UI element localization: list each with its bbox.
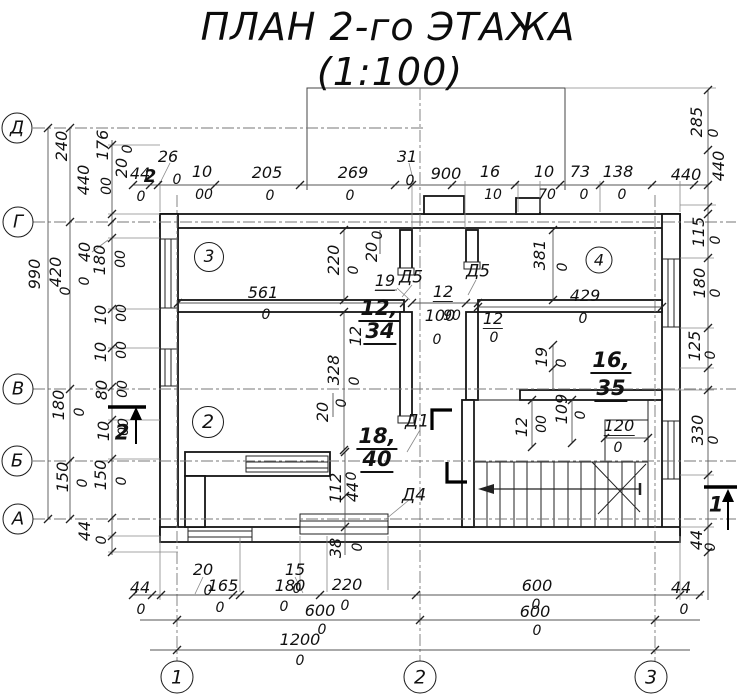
dim-label: 0	[137, 190, 146, 204]
dim-label: 0	[574, 411, 588, 420]
dim-label: 0	[347, 266, 361, 275]
dim-label: 00	[195, 188, 213, 202]
dim-label: 0	[709, 236, 723, 245]
dim-label: 240	[54, 131, 70, 162]
dim-label: 115	[691, 217, 707, 248]
door-label: Д4	[402, 488, 426, 505]
floor-plan-drawing: ПЛАН 2-го ЭТАЖА(1:100)440260100020502690…	[0, 0, 740, 695]
dim-label: 0	[351, 543, 365, 552]
section-label: 2	[115, 423, 130, 444]
dim-label: 00	[114, 250, 128, 268]
dim-label: 180	[51, 390, 67, 421]
title-line2: (1:100)	[317, 53, 463, 91]
dim-label: 31	[397, 149, 417, 165]
axis-circle: 4	[586, 247, 613, 274]
area-label: 34	[363, 321, 396, 345]
axis-circle: 3	[635, 661, 668, 694]
dim-label: 0	[335, 399, 349, 408]
dim-label: 150	[55, 462, 71, 493]
dim-label: 10	[534, 164, 554, 180]
dim-label: 561	[248, 285, 279, 301]
dim-label: 440	[76, 165, 92, 196]
dim-label: 0	[115, 477, 129, 486]
dim-label: 0	[556, 263, 570, 272]
dim-label: 138	[603, 164, 634, 180]
door-label: Д5	[466, 264, 490, 281]
dim-label: 0	[614, 441, 623, 455]
dim-label: 80	[94, 380, 110, 400]
dim-label: 109	[554, 394, 570, 425]
dim-label: 12	[514, 417, 530, 437]
dim-label: 1200	[280, 632, 321, 648]
dim-label: 0	[433, 333, 442, 347]
dim-label: 10	[93, 305, 109, 325]
dim-label: 0	[216, 601, 225, 615]
dim-label: 0	[680, 603, 689, 617]
dim-label: 0	[707, 436, 721, 445]
dim-label: 165	[208, 578, 239, 594]
axis-circle: Г	[3, 207, 34, 238]
axis-circle: 2	[192, 406, 224, 438]
dim-label: 0	[709, 289, 723, 298]
dim-label: 0	[580, 188, 589, 202]
dim-label: 44	[130, 580, 150, 596]
dim-label: 0	[73, 408, 87, 417]
dim-label: 150	[93, 460, 109, 491]
axis-circle: 2	[404, 661, 437, 694]
area-label: 40	[360, 449, 393, 473]
dim-label: 44	[77, 521, 93, 541]
dim-label: 00	[115, 341, 129, 359]
dim-label: 429	[570, 288, 601, 304]
dim-label: 120	[604, 418, 635, 436]
dim-label: 420	[48, 257, 64, 288]
dim-label: 600	[305, 603, 336, 619]
dim-label: 0	[704, 351, 718, 360]
dim-label: 0	[296, 654, 305, 668]
dim-label: 90	[443, 309, 461, 323]
dim-label: 00	[100, 177, 114, 195]
axis-circle: Б	[2, 446, 33, 477]
dim-label: 205	[252, 165, 283, 181]
axis-circle: 1	[161, 661, 194, 694]
dim-label: 440	[711, 151, 727, 182]
dim-label: 990	[27, 259, 43, 290]
dim-label: 20	[364, 242, 380, 262]
door-label: Д5	[399, 270, 423, 287]
dim-label: 38	[328, 538, 344, 558]
dim-label: 0	[341, 599, 350, 613]
dim-label: 180	[692, 268, 708, 299]
dim-label: 0	[555, 359, 569, 368]
dim-label: 19	[534, 347, 550, 367]
dim-label: 12	[433, 284, 453, 302]
axis-circle: А	[3, 504, 34, 535]
door-label: Д1	[405, 414, 429, 431]
dim-label: 0	[262, 308, 271, 322]
dim-label: 180	[275, 578, 306, 594]
dim-label: 00	[116, 380, 130, 398]
dim-label: 10	[93, 342, 109, 362]
dim-label: 440	[671, 167, 702, 183]
dim-label: 112	[328, 473, 344, 504]
dim-label: 220	[326, 245, 342, 276]
dim-label: 0	[95, 536, 109, 545]
dim-label: 12	[348, 326, 364, 346]
dim-label: 20	[114, 158, 130, 178]
dim-label: 176	[95, 130, 111, 161]
axis-circle: В	[3, 374, 34, 405]
dim-label: 10	[96, 421, 112, 441]
dim-label: 0	[533, 624, 542, 638]
dim-label: 180	[92, 245, 108, 276]
dim-label: 19	[375, 273, 395, 291]
dim-label: 0	[137, 603, 146, 617]
dim-label: 269	[338, 165, 369, 181]
dim-label: 600	[522, 578, 553, 594]
dim-label: 330	[690, 415, 706, 446]
dim-label: 0	[406, 174, 415, 188]
stair-direction-arrow	[478, 484, 494, 494]
dim-label: 44	[345, 482, 361, 502]
dim-label: 0	[348, 377, 362, 386]
dim-label: 70	[538, 188, 556, 202]
dim-label: 0	[173, 173, 182, 187]
dim-label: 10	[192, 164, 212, 180]
dim-label: 00	[115, 304, 129, 322]
dim-label: 0	[618, 188, 627, 202]
section-label: 2	[144, 168, 157, 186]
dim-label: 0	[78, 277, 92, 286]
title-line1: ПЛАН 2-го ЭТАЖА	[201, 8, 576, 46]
dim-label: 12	[483, 311, 503, 329]
dim-label: 16	[480, 164, 500, 180]
dim-label: 10	[484, 188, 502, 202]
dim-label: 0	[490, 331, 499, 345]
dim-label: 0	[121, 145, 135, 154]
dim-label: 0	[345, 472, 359, 481]
dim-label: 20	[315, 402, 331, 422]
dim-label: 0	[59, 287, 73, 296]
area-label: 35	[594, 378, 627, 402]
dim-label: 381	[532, 240, 548, 271]
dim-label: 0	[371, 231, 385, 240]
dim-label: 220	[332, 577, 363, 593]
dim-label: 26	[158, 149, 178, 165]
dim-label: 125	[687, 331, 703, 362]
dim-label: 0	[579, 312, 588, 326]
dim-label: 44	[671, 580, 691, 596]
section-label: 1	[709, 495, 724, 516]
area-label: 16,	[590, 350, 631, 374]
axis-circle: 3	[194, 242, 224, 272]
dim-label: 0	[346, 189, 355, 203]
dim-label: 600	[520, 604, 551, 620]
dim-label: 0	[707, 129, 721, 138]
dim-label: 0	[266, 189, 275, 203]
dim-label: 00	[535, 415, 549, 433]
axis-circle: Д	[2, 113, 33, 144]
dim-label: 0	[280, 600, 289, 614]
dim-label: 285	[689, 107, 705, 138]
dim-label: 73	[570, 164, 590, 180]
dim-label: 900	[431, 166, 462, 182]
dim-label: 0	[704, 543, 718, 552]
dim-label: 0	[76, 479, 90, 488]
dim-label: 328	[326, 355, 342, 386]
